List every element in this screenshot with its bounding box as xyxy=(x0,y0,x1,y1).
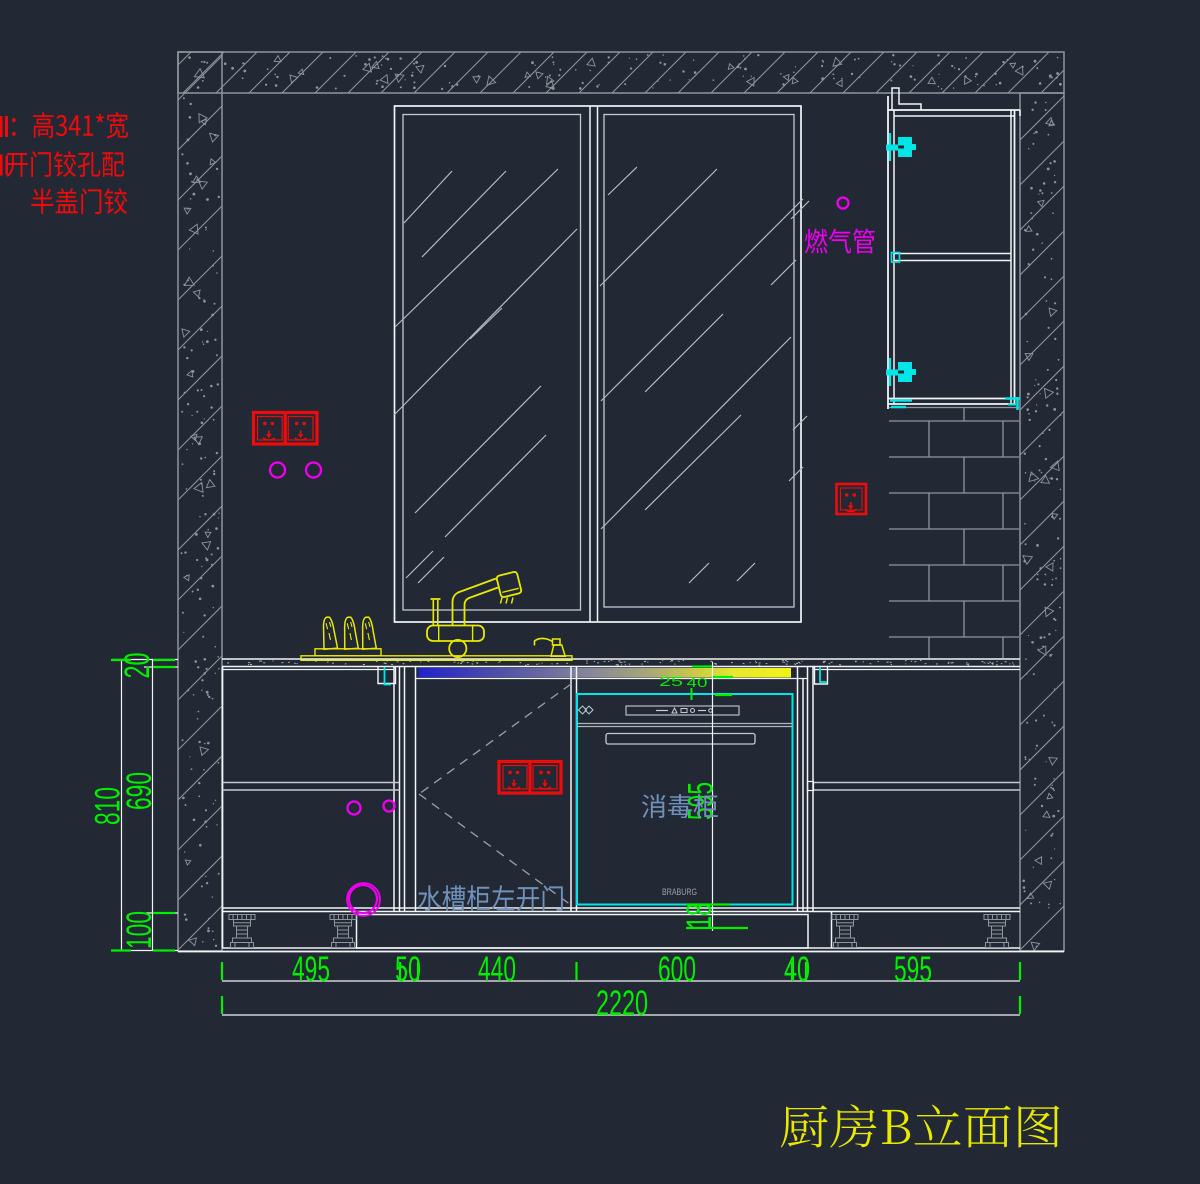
svg-text:2220: 2220 xyxy=(596,984,648,1023)
svg-text:20: 20 xyxy=(118,653,157,679)
svg-text:600: 600 xyxy=(658,950,696,989)
svg-text:BRABURG: BRABURG xyxy=(662,887,697,897)
svg-text:810: 810 xyxy=(89,787,128,825)
svg-text:50: 50 xyxy=(395,950,421,989)
svg-text:40: 40 xyxy=(687,675,708,690)
svg-text:440: 440 xyxy=(478,950,516,989)
svg-text:595: 595 xyxy=(894,950,932,989)
svg-text:25: 25 xyxy=(659,674,683,689)
svg-text:100: 100 xyxy=(120,911,159,949)
svg-text:40: 40 xyxy=(784,950,810,989)
svg-text:495: 495 xyxy=(292,950,330,989)
svg-text:18: 18 xyxy=(680,903,719,929)
